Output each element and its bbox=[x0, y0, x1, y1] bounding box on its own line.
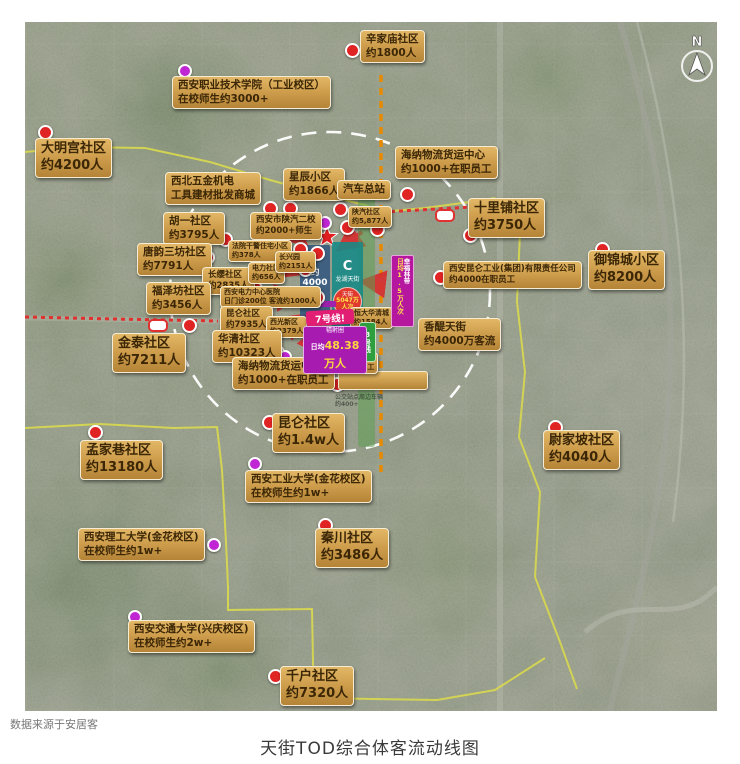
map-label-shanqi-shequ: 陕汽社区约5,877人 bbox=[348, 206, 392, 228]
map-label-jiaoda: 西安交通大学(兴庆校区)在校师生约2w+ bbox=[128, 620, 255, 653]
map-label-shilipu: 十里铺社区约3750人 bbox=[468, 198, 545, 238]
magenta-poi-dot bbox=[248, 457, 262, 471]
map-label-shanqi-erxiao: 西安市陕汽二校约2000+师生 bbox=[250, 212, 322, 240]
map-label-daminggong: 大明宫社区约4200人 bbox=[35, 138, 112, 178]
metro-station-marker bbox=[148, 319, 168, 332]
map-label-tangyun: 唐韵三坊社区约7791人 bbox=[137, 243, 212, 276]
map-label-zhiye-college: 西安职业技术学院（工业校区）在校师生约3000+ bbox=[172, 76, 331, 109]
map-label-fuzefang: 福泽坊社区约3456人 bbox=[146, 282, 211, 315]
map-label-yujincheng: 御锦城小区约8200人 bbox=[588, 250, 665, 290]
map-label-dianli-hospital: 西安电力中心医院日门诊200位 客流约1000人 bbox=[220, 286, 321, 308]
radius-badge-label: 日均 bbox=[311, 343, 325, 351]
map-label-ligong-univ: 西安理工大学(金花校区)在校师生约1w+ bbox=[78, 528, 205, 561]
map-label-wujin-mall: 西北五金机电工具建材批发商城 bbox=[165, 172, 261, 205]
red-poi-dot bbox=[345, 43, 360, 58]
map: N 约4000人 C 龙湖天街 天街 5047万人次 日均1.5万人次 幸福林带… bbox=[25, 22, 717, 711]
faint-map-note: 公交站点周边车辆 约400+ bbox=[335, 394, 383, 408]
radius-badge: 辐射圈 日均48.38万人 bbox=[303, 326, 367, 374]
magenta-poi-dot bbox=[207, 538, 221, 552]
longfor-logo-icon: C bbox=[343, 260, 353, 273]
paradise-walk-brand: 龙湖天街 bbox=[335, 277, 359, 283]
page-title: 天街TOD综合体客流动线图 bbox=[0, 734, 740, 759]
faint-map-note-line2: 约400+ bbox=[335, 401, 383, 408]
red-poi-dot bbox=[400, 187, 415, 202]
map-label-xinjiamiao: 辛家庙社区约1800人 bbox=[360, 30, 425, 63]
map-label-mengjiaxiang: 孟家巷社区约13180人 bbox=[80, 440, 163, 480]
forest-belt-banner: 日均1.5万人次 幸福林带 bbox=[391, 255, 414, 327]
map-label-weijiapo: 尉家坡社区约4040人 bbox=[543, 430, 620, 470]
map-label-qianhu: 千户社区约7320人 bbox=[280, 666, 354, 706]
forest-belt-banner-name: 幸福林带 bbox=[403, 258, 410, 324]
map-label-haina-north: 海纳物流货运中心约1000+在职员工 bbox=[395, 146, 498, 179]
map-label-jintai: 金泰社区约7211人 bbox=[112, 333, 186, 373]
radius-badge-value: 48.38万人 bbox=[324, 339, 359, 370]
metro-station-marker bbox=[435, 209, 455, 222]
map-label-gongye-univ: 西安工业大学(金花校区)在校师生约1w+ bbox=[245, 470, 372, 503]
map-label-kunlun-gongye: 西安昆仑工业(集团)有限责任公司约4000在职员工 bbox=[443, 261, 582, 289]
source-note: 数据来源于安居客 bbox=[10, 716, 98, 732]
map-label-changxingyuan: 长兴园约2151人 bbox=[275, 251, 316, 273]
map-label-xingchen: 星辰小区约1866人 bbox=[283, 168, 345, 201]
map-label-xiangti: 香醍天街约4000万客流 bbox=[418, 318, 501, 351]
red-poi-dot bbox=[333, 202, 348, 217]
radius-badge-title: 辐射圈 bbox=[306, 328, 364, 335]
map-label-qinchuan: 秦川社区约3486人 bbox=[315, 528, 389, 568]
map-label-qiche-zongzhan: 汽车总站 bbox=[337, 180, 391, 200]
page: N 约4000人 C 龙湖天街 天街 5047万人次 日均1.5万人次 幸福林带… bbox=[0, 0, 740, 764]
red-poi-dot bbox=[88, 425, 103, 440]
map-label-huyi: 胡一社区约3795人 bbox=[163, 212, 225, 245]
red-poi-dot bbox=[182, 318, 197, 333]
line7-tag: 7号线! bbox=[306, 309, 355, 326]
map-label-kunlun-14w: 昆仑社区约1.4w人 bbox=[272, 413, 345, 453]
